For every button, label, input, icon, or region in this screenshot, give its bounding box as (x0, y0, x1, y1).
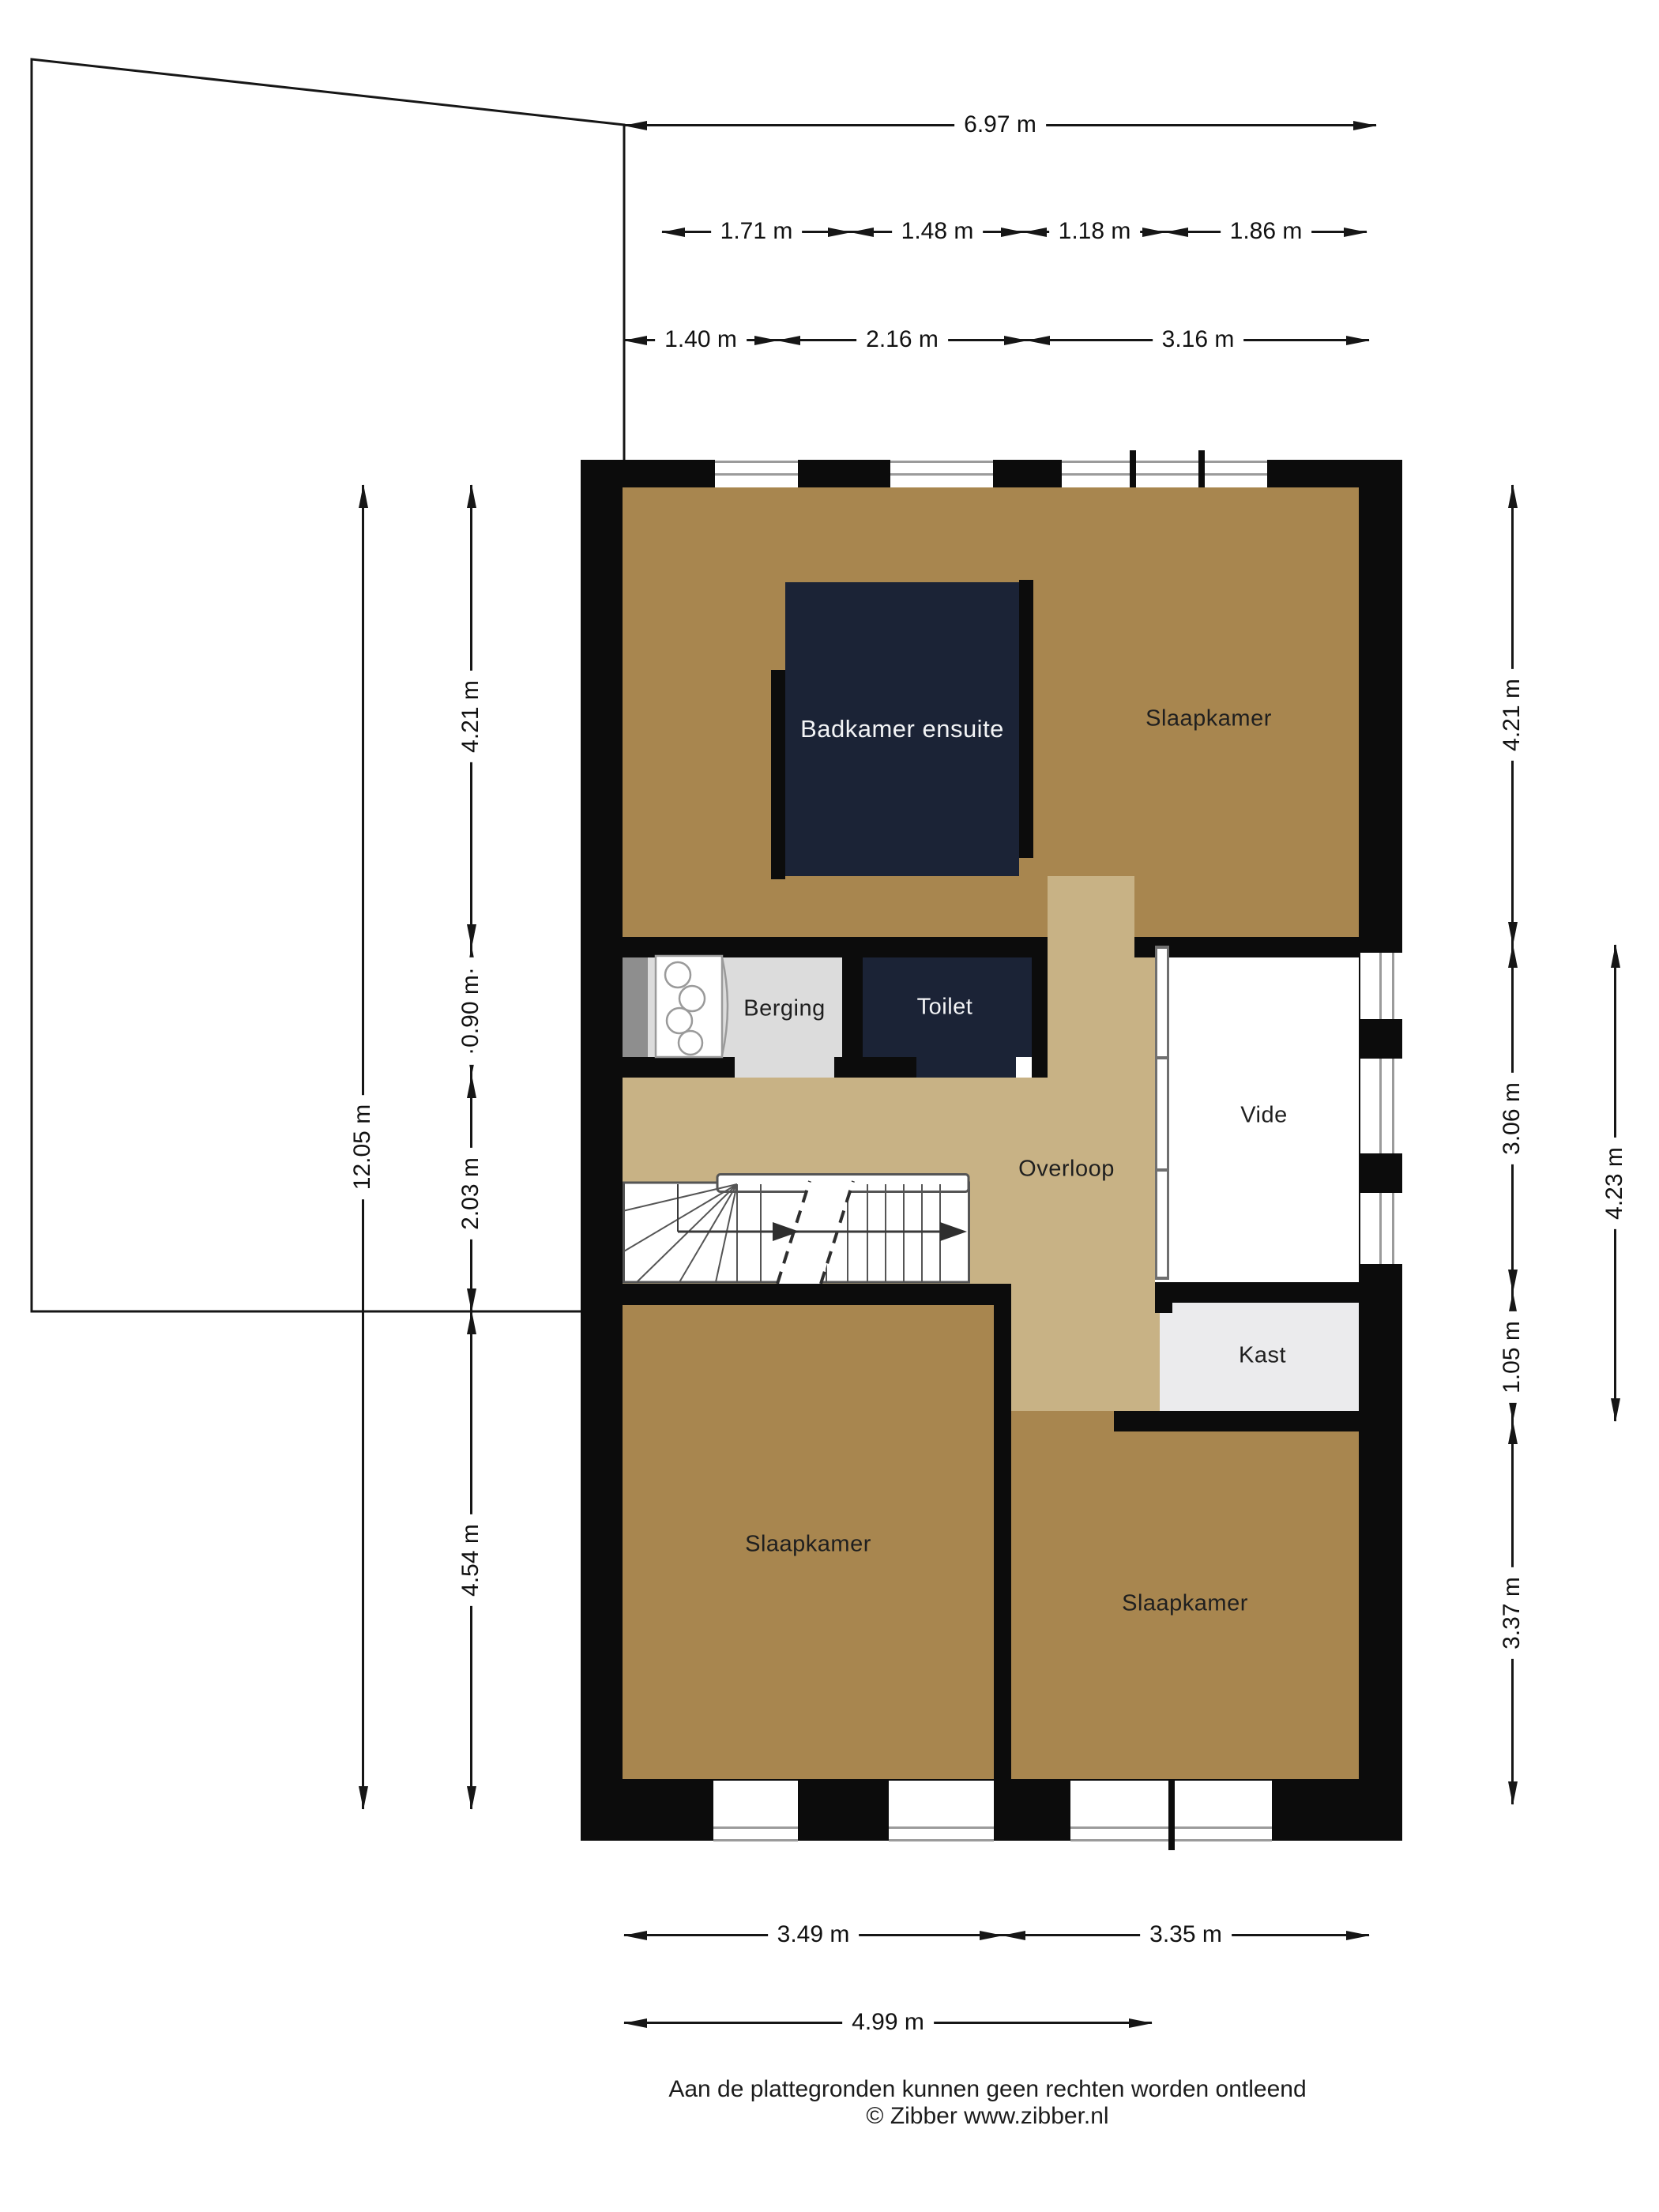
dimension-label: 1.86 m (1221, 216, 1312, 246)
wall-toilet-right (1032, 937, 1048, 1078)
dimension-label: 1.40 m (655, 325, 747, 355)
dimension-label: 2.03 m (456, 1148, 486, 1240)
dimension-arrow-down (1611, 1398, 1620, 1422)
dimension-arrow-right (1346, 336, 1370, 345)
dimension-label: 4.23 m (1600, 1138, 1630, 1229)
dimension-arrow-down (467, 1786, 476, 1810)
label-badkamer-ensuite: Badkamer ensuite (800, 715, 1004, 743)
dimension-arrow-down (467, 1288, 476, 1312)
dimension-left-total: 12.05 m (351, 485, 374, 1809)
window-top-2 (890, 450, 993, 487)
dimension-arrow-up (467, 484, 476, 508)
dimension-arrow-right (754, 336, 778, 345)
wall-kast-pillar (1155, 1282, 1172, 1313)
dimension-label: 1.71 m (711, 216, 803, 246)
window-bottom-3 (1070, 1781, 1272, 1850)
window-frame (889, 1826, 994, 1829)
dimension-arrow-left (623, 336, 647, 345)
dimension-top-r2-3: 1.86 m (1165, 220, 1367, 243)
dimension-arrow-right (1001, 228, 1025, 237)
dimension-arrow-left (623, 1931, 647, 1940)
dimension-label: 1.05 m (1497, 1311, 1527, 1403)
dimension-arrow-up (1508, 484, 1518, 508)
dimension-arrow-right (1344, 228, 1367, 237)
window-frame (715, 473, 798, 476)
dimension-arrow-right (1346, 1931, 1370, 1940)
dimension-arrow-right (980, 1931, 1003, 1940)
dimension-top-total: 6.97 m (624, 113, 1376, 137)
railing-post (1157, 1277, 1167, 1280)
dimension-arrow-down (467, 924, 476, 948)
dimension-right-0: 4.21 m (1500, 485, 1524, 945)
dimension-label: 4.21 m (1497, 669, 1527, 761)
window-frame (1379, 1193, 1382, 1264)
dimension-arrow-up (1508, 1420, 1518, 1444)
window-top-3 (1062, 450, 1267, 487)
dimension-label: 1.18 m (1049, 216, 1141, 246)
dimension-right-3: 3.37 m (1500, 1421, 1524, 1804)
dimension-arrow-up (359, 484, 368, 508)
dimension-arrow-left (623, 121, 647, 130)
wall-exterior-left (581, 460, 623, 1841)
window-top-1 (715, 450, 798, 487)
wall-berging-toilet-divider (842, 957, 863, 1057)
wall-under-stairs (623, 1284, 1011, 1305)
dimension-top-r3-0: 1.40 m (624, 328, 777, 352)
window-bottom-1 (713, 1781, 798, 1850)
wall-kast-top (1155, 1282, 1359, 1303)
window-frame (715, 461, 798, 463)
wall-badkamer-left (771, 670, 785, 879)
label-berging: Berging (743, 996, 825, 1022)
window-frame (1062, 461, 1267, 463)
dimension-top-r2-2: 1.18 m (1024, 220, 1165, 243)
dimension-top-r2-0: 1.71 m (662, 220, 851, 243)
floorplan-canvas: Badkamer ensuite Slaapkamer Berging Toil… (0, 0, 1659, 2212)
window-right-1 (1360, 953, 1412, 1019)
window-frame (713, 1826, 798, 1829)
wall-berging-toilet-bottom-mid (834, 1057, 916, 1078)
footer-copyright: © Zibber www.zibber.nl (668, 2103, 1306, 2130)
dimension-label: 4.99 m (842, 2007, 934, 2037)
window-frame (1379, 953, 1382, 1019)
stairs-icon (623, 1173, 970, 1284)
footer-disclaimer: Aan de plattegronden kunnen geen rechten… (668, 2076, 1306, 2103)
wall-berging-bottom (623, 1057, 735, 1078)
dimension-arrow-up (1611, 944, 1620, 968)
dimension-arrow-right (1004, 336, 1028, 345)
dimension-label: 3.35 m (1140, 1920, 1232, 1950)
window-frame (890, 473, 993, 476)
label-vide: Vide (1240, 1103, 1288, 1129)
dimension-arrow-left (777, 336, 800, 345)
vide-railing (1155, 946, 1169, 1280)
window-frame (1392, 1059, 1394, 1153)
dimension-top-r2-1: 1.48 m (851, 220, 1024, 243)
window-right-3 (1360, 1193, 1412, 1264)
dimension-left-1: ·0.90 m· (459, 947, 483, 1075)
berging-door-opening (735, 1057, 834, 1078)
railing-post (1157, 1056, 1167, 1059)
dimension-arrow-down (1508, 1781, 1518, 1805)
dimension-arrow-left (1023, 228, 1047, 237)
window-frame (1392, 953, 1394, 1019)
label-slaapkamer-linksonder: Slaapkamer (745, 1532, 871, 1558)
dimension-bottom-1: 3.35 m (1003, 1923, 1369, 1947)
railing-post (1157, 1168, 1167, 1172)
label-kast: Kast (1239, 1343, 1286, 1369)
dimension-label: 6.97 m (954, 110, 1046, 140)
dimension-bottom-0: 3.49 m (624, 1923, 1003, 1947)
dimension-arrow-left (623, 2018, 647, 2028)
dimension-arrow-right (1142, 228, 1166, 237)
railing-post (1157, 946, 1167, 949)
dimension-left-0: 4.21 m (459, 485, 483, 947)
overloop-beside-toilet (1048, 937, 1155, 1078)
dimension-label: 1.48 m (892, 216, 984, 246)
wall-kast-bottom (1114, 1411, 1359, 1431)
dimension-arrow-down (359, 1786, 368, 1810)
footer: Aan de plattegronden kunnen geen rechten… (668, 2076, 1306, 2130)
window-frame (1392, 1193, 1394, 1264)
window-right-2 (1360, 1059, 1412, 1153)
dimension-label: 3.16 m (1153, 325, 1244, 355)
dimension-left-2: 2.03 m (459, 1075, 483, 1311)
dimension-arrow-down (1508, 1270, 1518, 1293)
label-overloop: Overloop (1018, 1157, 1115, 1183)
label-slaapkamer-rechtsonder: Slaapkamer (1122, 1591, 1248, 1617)
dimension-arrow-right (1353, 121, 1377, 130)
toilet-door-opening (916, 1057, 1016, 1078)
dimension-top-r3-1: 2.16 m (777, 328, 1027, 352)
dimension-label: ·0.90 m· (456, 957, 486, 1065)
window-mullion (1198, 450, 1205, 487)
berging-counter (623, 957, 648, 1057)
dimension-arrow-up (1508, 944, 1518, 968)
dimension-bottom-total: 4.99 m (624, 2011, 1152, 2034)
dimension-arrow-left (1002, 1931, 1025, 1940)
dimension-label: 12.05 m (348, 1095, 378, 1199)
dimension-arrow-right (828, 228, 852, 237)
wall-bedroom-divider (994, 1284, 1011, 1779)
window-frame (1062, 473, 1267, 476)
dimension-arrow-down (1508, 922, 1518, 946)
dimension-label: 4.21 m (456, 671, 486, 762)
dimension-right-2: 1.05 m (1500, 1292, 1524, 1421)
dimension-arrow-left (661, 228, 685, 237)
window-frame (713, 1839, 798, 1841)
dimension-label: 3.37 m (1497, 1567, 1527, 1659)
window-frame (1379, 1059, 1382, 1153)
dimension-label: 3.06 m (1497, 1073, 1527, 1164)
window-mullion (1168, 1781, 1175, 1850)
dimension-arrow-up (467, 1311, 476, 1334)
washing-machine-icon (654, 954, 735, 1059)
dimension-arrow-up (467, 1074, 476, 1098)
window-frame (890, 461, 993, 463)
window-bottom-2 (889, 1781, 994, 1850)
label-slaapkamer-boven: Slaapkamer (1145, 706, 1272, 732)
dimension-right-outer: 4.23 m (1603, 945, 1627, 1421)
dimension-label: 3.49 m (768, 1920, 860, 1950)
dimension-arrow-left (850, 228, 874, 237)
dimension-label: 4.54 m (456, 1514, 486, 1606)
overloop-corridor (1011, 1284, 1160, 1411)
wall-badkamer-right (1019, 580, 1033, 858)
label-toilet: Toilet (917, 995, 973, 1021)
dimension-arrow-left (1026, 336, 1050, 345)
dimension-label: 2.16 m (856, 325, 948, 355)
window-frame (889, 1839, 994, 1841)
dimension-left-3: 4.54 m (459, 1311, 483, 1809)
dimension-arrow-left (1164, 228, 1188, 237)
dimension-right-1: 3.06 m (1500, 945, 1524, 1292)
window-mullion (1130, 450, 1136, 487)
dimension-top-r3-2: 3.16 m (1027, 328, 1369, 352)
dimension-arrow-right (1129, 2018, 1153, 2028)
